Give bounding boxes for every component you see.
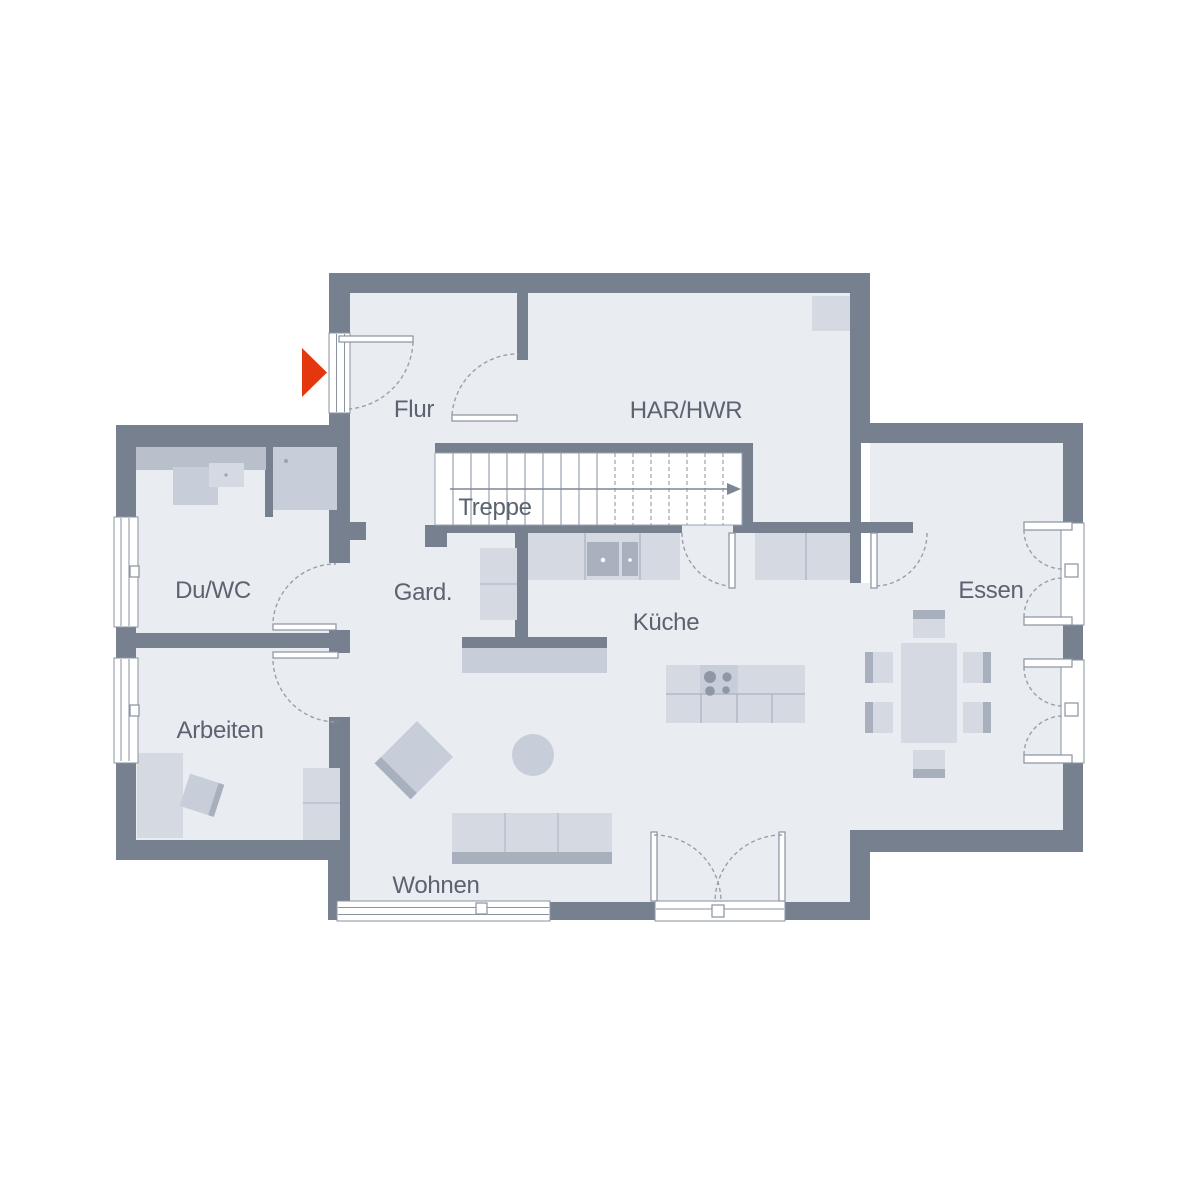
- floor-plan-svg: Flur HAR/HWR Treppe Du/WC Gard. Küche Es…: [0, 0, 1200, 1200]
- wall-duwc-arbeiten: [136, 633, 330, 648]
- duwc-shower-drain: [284, 459, 288, 463]
- wall-right-lower: [850, 830, 870, 920]
- wall-right-upper: [850, 273, 870, 443]
- window-handle-icon: [130, 705, 139, 716]
- door-leaf: [273, 624, 336, 630]
- label-wohnen: Wohnen: [392, 872, 479, 899]
- label-har-hwr: HAR/HWR: [630, 397, 743, 424]
- wall-left-below-door: [329, 413, 350, 447]
- wall-stairs-top: [435, 443, 753, 453]
- wall-duwc-stub: [265, 447, 273, 517]
- wall-flur-har: [517, 293, 528, 360]
- wall-stairs-bottom-left: [425, 525, 682, 533]
- duwc-toilet-dot: [224, 473, 227, 476]
- wall-shared-left-2: [329, 630, 350, 653]
- door-leaf-bottom: [1024, 755, 1072, 763]
- opening-arbeiten: [329, 653, 350, 717]
- wall-pier-nub: [350, 522, 366, 540]
- wall-top-central: [329, 273, 870, 293]
- wall-kitchen-dining-stub: [850, 443, 861, 583]
- label-garderobe: Gard.: [394, 579, 453, 606]
- desk: [137, 753, 183, 838]
- window-duwc: [114, 517, 139, 627]
- oven-knob: [601, 558, 605, 562]
- window-handle-icon: [130, 566, 139, 577]
- label-arbeiten: Arbeiten: [177, 717, 264, 744]
- wall-stairs-end-block: [425, 525, 447, 547]
- door-leaf: [273, 652, 338, 658]
- wall-stairs-bottom-right: [733, 522, 913, 533]
- duwc-shower: [273, 447, 337, 510]
- wall-rightwing-right-2: [1063, 625, 1083, 660]
- door-leaf-left: [651, 832, 657, 901]
- wall-leftwing-bottom: [116, 840, 330, 860]
- door-leaf: [871, 533, 877, 588]
- floor-plan-canvas: Flur HAR/HWR Treppe Du/WC Gard. Küche Es…: [0, 0, 1200, 1200]
- door-leaf-bottom: [1024, 617, 1072, 625]
- wall-rightwing-bottom: [870, 830, 1083, 852]
- door-handle-icon: [1065, 564, 1078, 577]
- window-handle-icon: [476, 903, 487, 914]
- wall-leftwing-left-2: [116, 627, 136, 658]
- wall-leftwing-left-3: [116, 763, 136, 840]
- opening-duwc: [329, 563, 350, 630]
- label-essen: Essen: [958, 577, 1023, 604]
- wall-bench-half: [462, 637, 607, 648]
- wall-left-upper: [329, 293, 350, 333]
- sofa-base: [452, 852, 612, 864]
- label-treppe: Treppe: [458, 494, 531, 521]
- door-leaf-top: [1024, 522, 1072, 530]
- door-leaf-top: [1024, 659, 1072, 667]
- kitchen-counter-right: [755, 533, 850, 580]
- har-cabinet: [812, 296, 850, 331]
- garderobe-bench: [462, 648, 607, 673]
- window-wohnen: [337, 901, 550, 921]
- entrance-door-leaf: [339, 336, 413, 342]
- label-flur: Flur: [394, 396, 434, 423]
- door-handle-icon: [712, 905, 724, 917]
- office-cabinet: [303, 768, 340, 840]
- wall-rightwing-top: [870, 423, 1083, 443]
- sofa-cushions: [452, 813, 612, 852]
- label-kueche: Küche: [633, 609, 700, 636]
- wall-leftwing-left-1: [116, 447, 136, 517]
- dining-table: [901, 643, 957, 743]
- door-leaf: [452, 415, 517, 421]
- door-handle-icon: [1065, 703, 1078, 716]
- coffee-table-round: [512, 734, 554, 776]
- window-arbeiten: [114, 658, 139, 763]
- appliance-knob: [628, 558, 632, 562]
- wall-stairs-right: [742, 453, 753, 525]
- wall-leftwing-top: [116, 425, 330, 447]
- wall-rightwing-right-1: [1063, 443, 1083, 523]
- label-du-wc: Du/WC: [175, 577, 251, 604]
- floor-right-wing: [870, 443, 1063, 830]
- door-leaf: [729, 533, 735, 588]
- room-floors: [136, 293, 1063, 902]
- entrance-arrow-icon: [302, 348, 327, 397]
- duwc-vanity-counter: [136, 447, 266, 470]
- door-leaf-right: [779, 832, 785, 901]
